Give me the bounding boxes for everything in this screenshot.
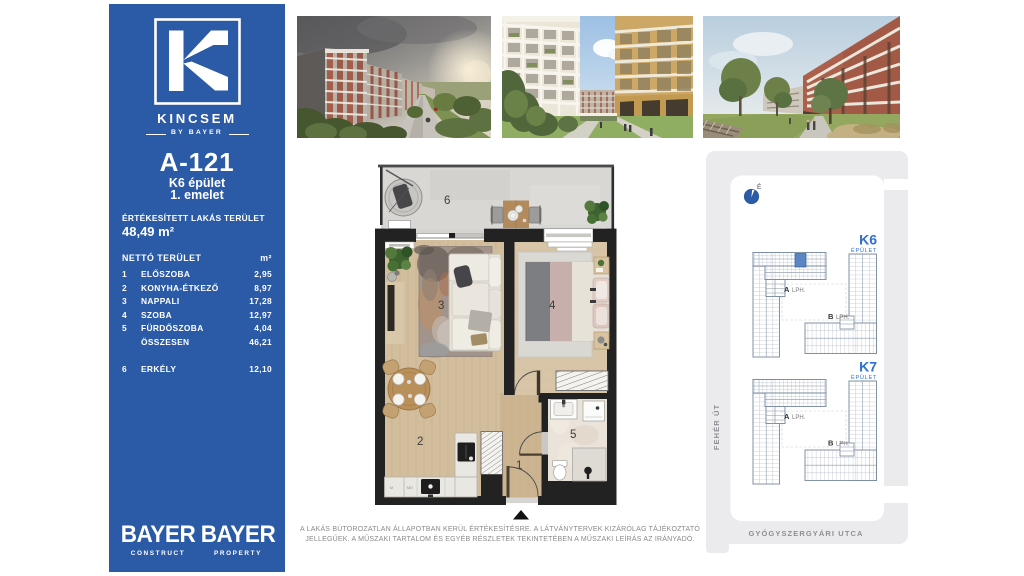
svg-text:M: M <box>390 486 393 490</box>
svg-text:GYÓGYSZERGYÁRI UTCA: GYÓGYSZERGYÁRI UTCA <box>748 529 863 538</box>
svg-text:B: B <box>828 439 834 448</box>
svg-text:FEHÉR ÚT: FEHÉR ÚT <box>712 404 721 450</box>
svg-text:LPH.: LPH. <box>836 315 850 321</box>
svg-text:MO: MO <box>407 486 413 490</box>
svg-text:A: A <box>784 412 790 421</box>
svg-text:5: 5 <box>570 429 576 441</box>
svg-text:6: 6 <box>444 195 450 207</box>
svg-text:LPH.: LPH. <box>792 288 806 294</box>
svg-text:LPH.: LPH. <box>836 442 850 448</box>
svg-text:A: A <box>784 285 790 294</box>
svg-text:4: 4 <box>549 300 556 312</box>
svg-text:3: 3 <box>438 300 444 312</box>
svg-text:ÉPÜLET: ÉPÜLET <box>851 247 877 254</box>
svg-text:K6: K6 <box>859 232 877 248</box>
svg-text:ÉPÜLET: ÉPÜLET <box>851 374 877 381</box>
svg-text:B: B <box>828 312 834 321</box>
svg-text:LPH.: LPH. <box>792 415 806 421</box>
svg-text:2: 2 <box>417 436 423 448</box>
svg-text:K7: K7 <box>859 359 877 375</box>
svg-text:É: É <box>757 182 762 191</box>
